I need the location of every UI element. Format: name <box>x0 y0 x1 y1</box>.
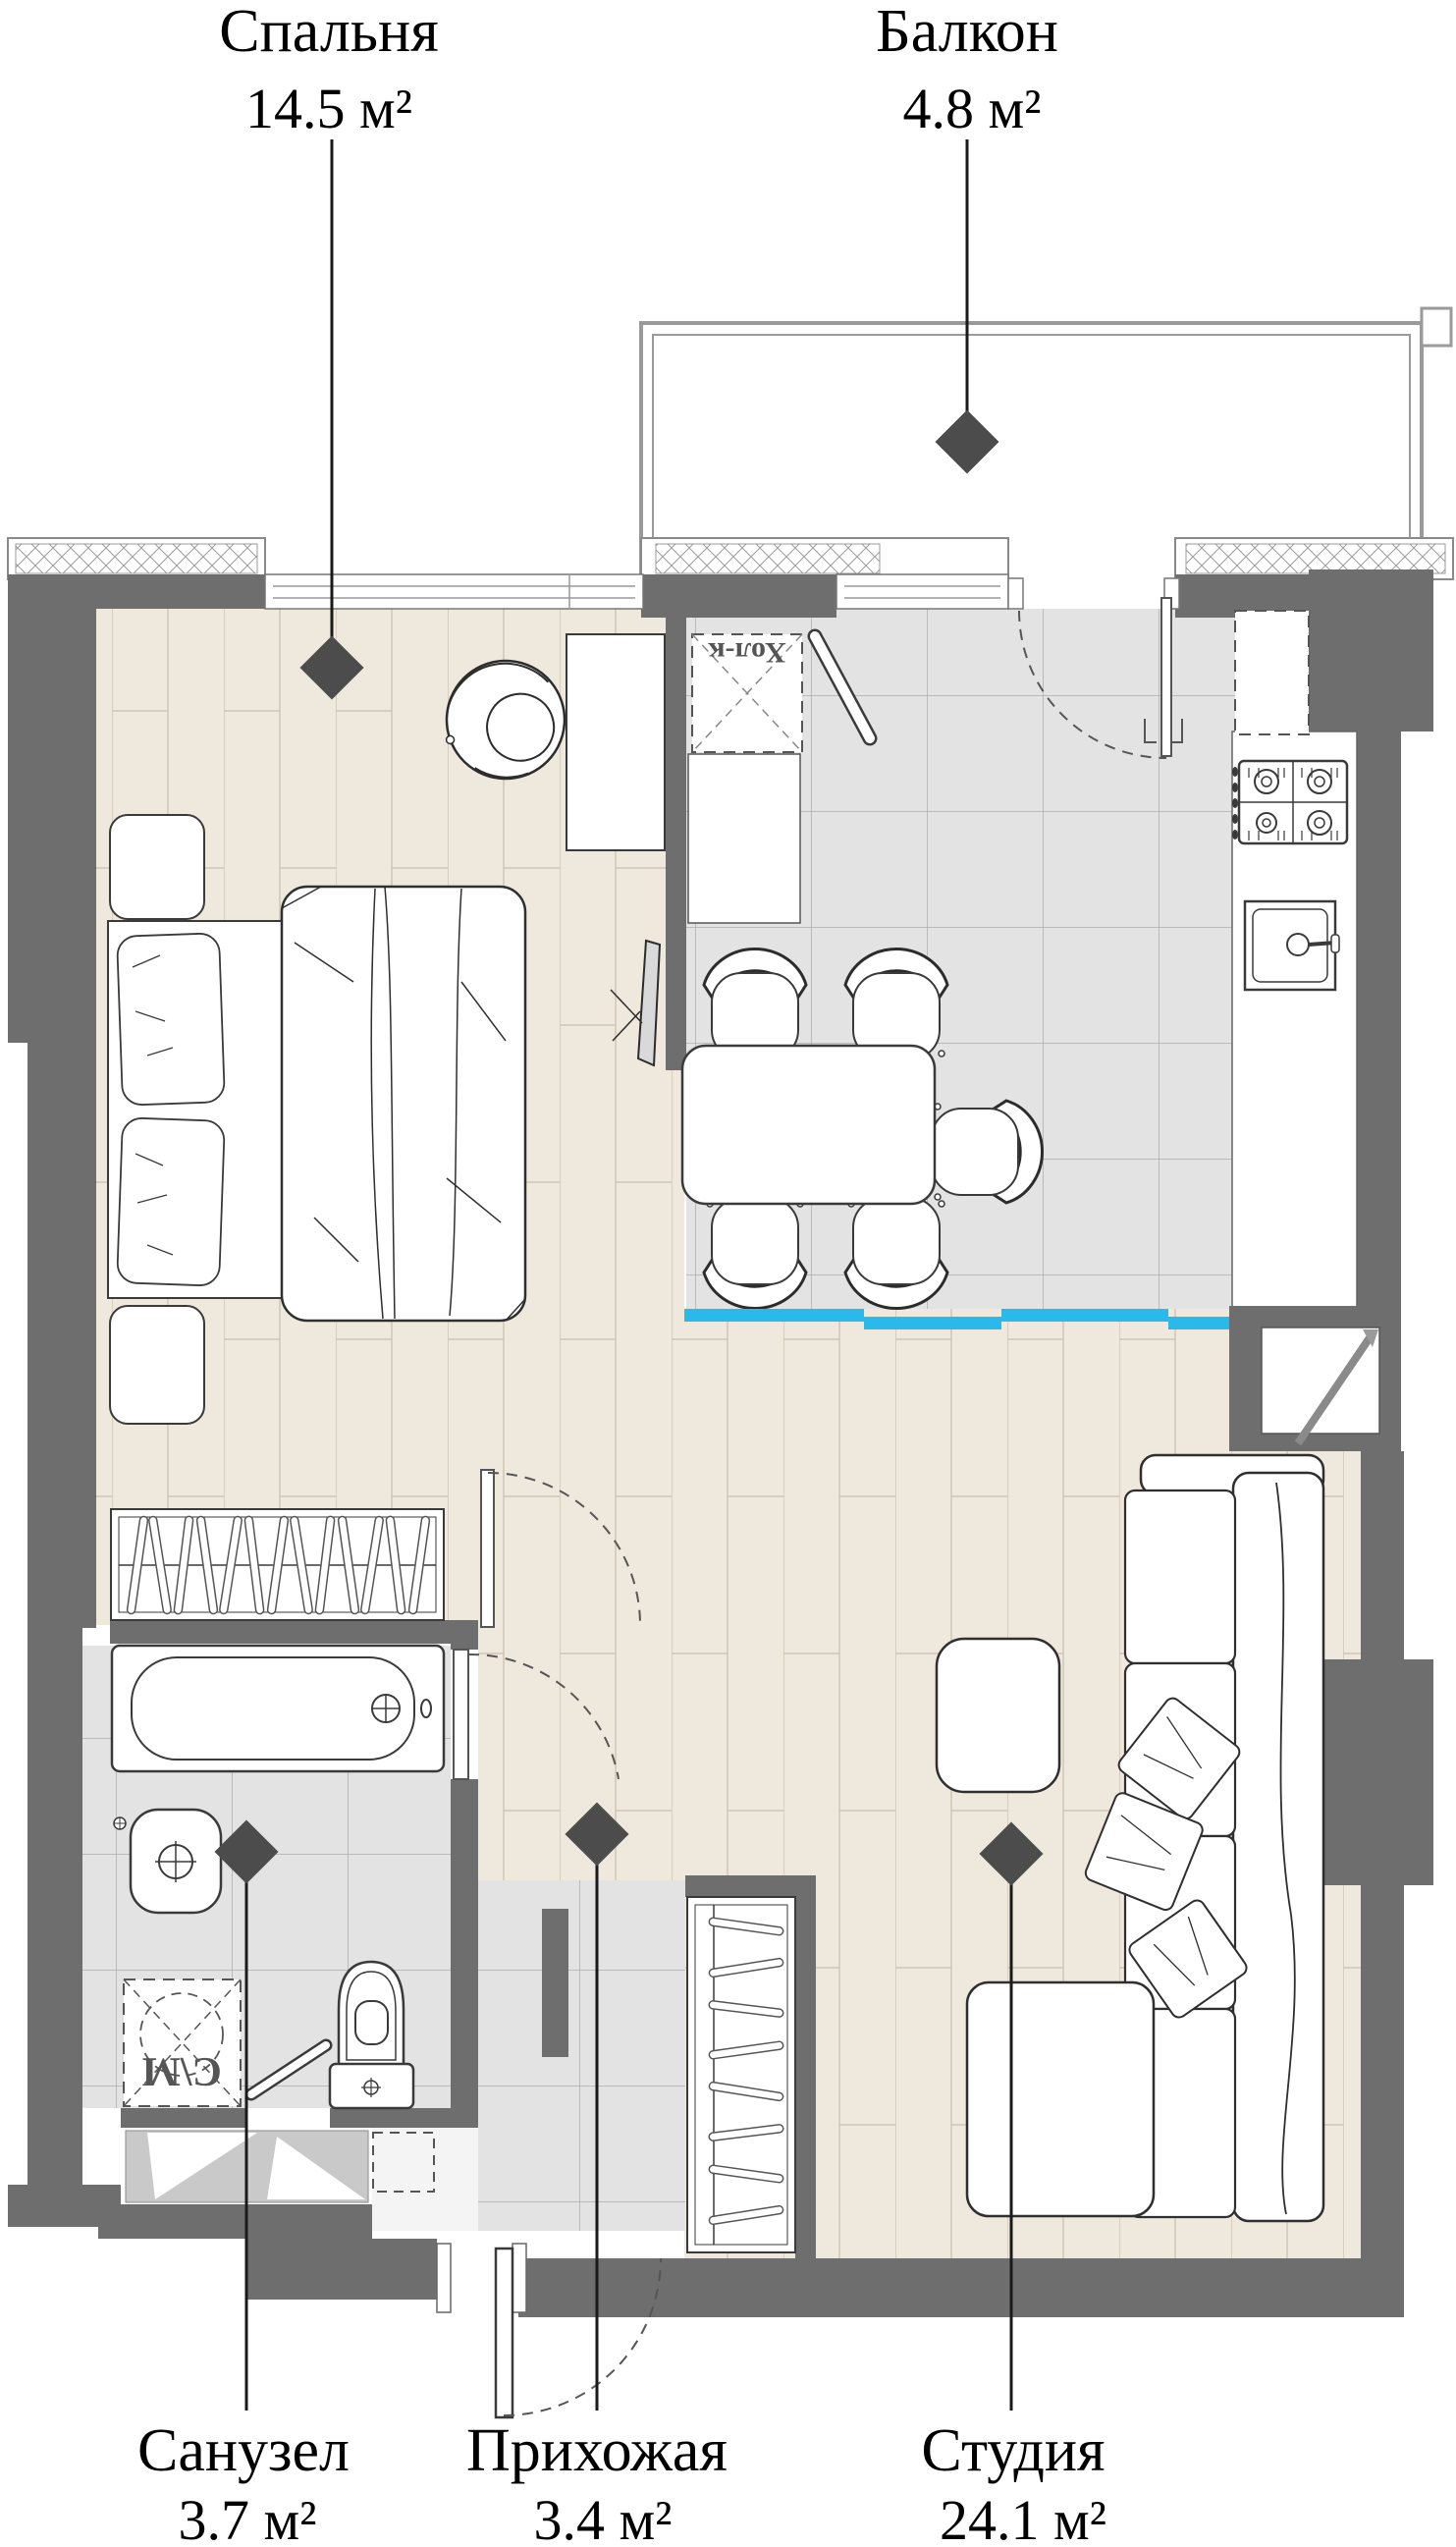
wall-under-toilet <box>330 2108 478 2128</box>
nightstand <box>110 815 204 919</box>
studio-label: Студия <box>921 2417 1105 2484</box>
hallway-wardrobe <box>687 1897 795 2252</box>
balcony-outline <box>641 308 1451 574</box>
wall-corner-top-right <box>1309 569 1433 732</box>
wall-bath-bottom <box>98 2204 372 2239</box>
wall-bottom-right <box>518 2258 1404 2317</box>
tv-unit-corner <box>1229 1306 1401 1451</box>
floor-plan-drawing: Хол-к <box>0 0 1456 2547</box>
wall-hall-stub <box>542 1909 568 2057</box>
diamond-marker-icon <box>935 409 998 473</box>
fridge-label: Хол-к <box>708 636 786 669</box>
wall-under-wardrobe <box>110 1620 451 1644</box>
wall-left-bath <box>27 1628 82 2188</box>
studio-area: 24.1 м² <box>940 2488 1106 2547</box>
balcony-label: Балкон <box>876 0 1058 65</box>
wall-bottom-left <box>245 2239 437 2300</box>
bedroom-wardrobe <box>111 1509 444 1620</box>
dining-chair <box>845 948 947 1059</box>
bathroom-area: 3.7 м² <box>178 2488 316 2547</box>
hallway-label: Прихожая <box>466 2417 728 2484</box>
kitchen-window-hatch-right <box>1186 544 1445 573</box>
bathroom-label: Санузел <box>137 2417 350 2484</box>
bedroom-area: 14.5 м² <box>245 77 412 140</box>
kitchen-window-hatch-left <box>656 544 880 573</box>
wall-shaft-block <box>1316 1659 1433 1885</box>
kitchen-cabinet-column <box>688 754 800 923</box>
dining-chair <box>932 1101 1043 1203</box>
wall-bath-door-stub <box>451 1620 478 1650</box>
bedroom-label: Спальня <box>219 0 439 65</box>
dining-chair <box>845 1198 947 1309</box>
glazing-bands <box>265 574 1008 609</box>
balcony-area: 4.8 м² <box>902 77 1041 140</box>
sofa-backrest <box>1233 1473 1323 2221</box>
toilet <box>330 1962 413 2108</box>
window-sills <box>8 538 1453 579</box>
wall-under-washer <box>121 2108 245 2128</box>
dining-table <box>682 1046 935 1204</box>
wall-left-mid <box>27 1043 96 1628</box>
wall-right-upper <box>1357 732 1401 1306</box>
coffee-table <box>937 1639 1059 1792</box>
washing-machine: С\М <box>124 1979 241 2106</box>
stove <box>1232 761 1347 843</box>
dining-chair <box>704 1198 806 1309</box>
wall-hall-wardrobe-top <box>685 1875 816 1897</box>
tall-cabinet-dashed <box>1235 611 1309 734</box>
sofa-chaise <box>967 1982 1154 2216</box>
kitchen-sink <box>1245 901 1339 990</box>
bathtub <box>112 1646 444 1771</box>
hallway-area: 3.4 м² <box>533 2488 672 2547</box>
entry-niche-floor <box>372 2128 478 2231</box>
nightstand <box>110 1306 204 1424</box>
wall-under-bedroom-window <box>96 574 265 609</box>
bedroom-desk <box>566 634 665 850</box>
wall-bath-right <box>451 1779 478 2128</box>
bed-duvet <box>282 887 525 1321</box>
washer-label: С\М <box>141 2048 222 2093</box>
partition-bedroom-kitchen <box>666 602 686 1070</box>
bedroom-window-hatch <box>16 544 257 573</box>
floor-plan-page: Хол-к <box>0 0 1456 2547</box>
dining-chair <box>704 948 806 1059</box>
wall-hall-wardrobe-side <box>795 1897 816 2258</box>
sofa-seat <box>1125 1490 1235 1663</box>
fridge: Хол-к <box>692 634 802 752</box>
wall-left-upper <box>8 574 96 1043</box>
hallway-tile-floor <box>478 1880 685 2231</box>
